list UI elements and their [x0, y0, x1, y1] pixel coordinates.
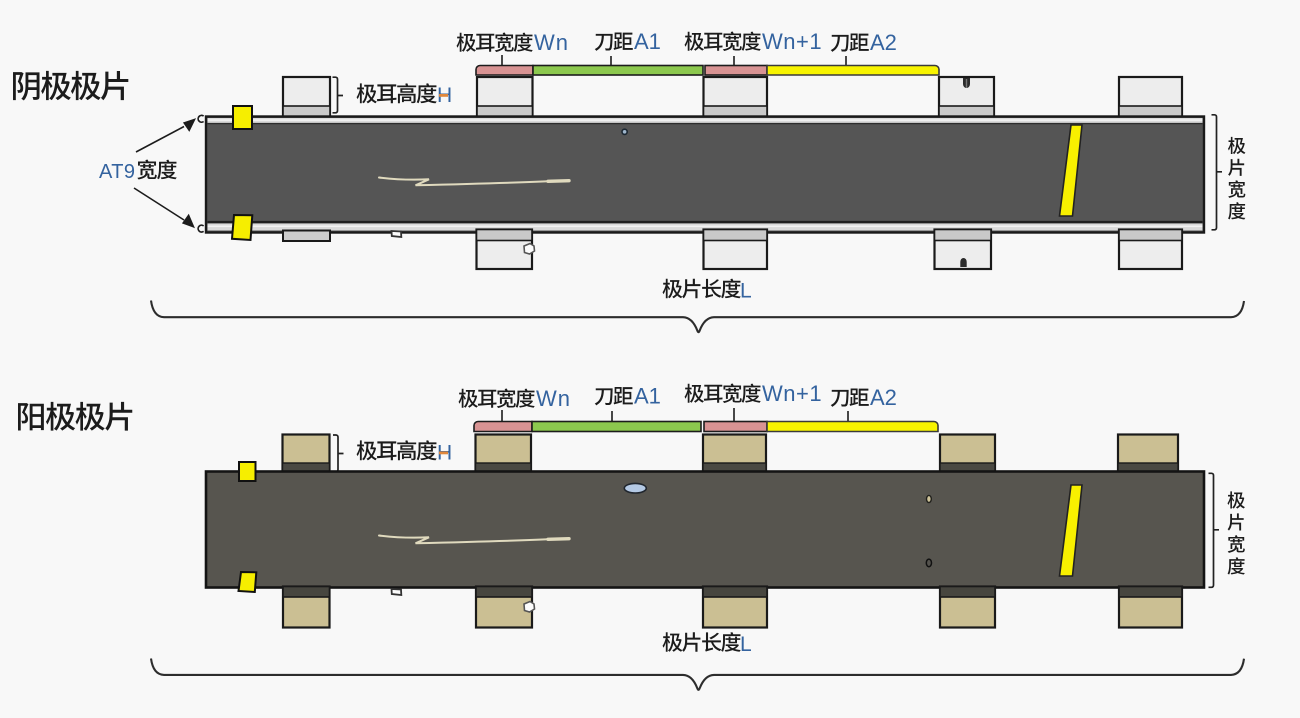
svg-text:A1: A1: [634, 29, 661, 54]
svg-text:Wn+1: Wn+1: [762, 29, 822, 54]
svg-text:A2: A2: [870, 385, 897, 410]
svg-text:Wn+1: Wn+1: [762, 381, 822, 406]
svg-text:A1: A1: [634, 384, 661, 409]
svg-text:Wn: Wn: [534, 30, 569, 55]
svg-text:L: L: [740, 280, 752, 303]
svg-text:L: L: [740, 633, 752, 656]
svg-text:Wn: Wn: [536, 386, 571, 411]
svg-text:A2: A2: [870, 30, 897, 55]
svg-text:AT9: AT9: [99, 161, 135, 183]
